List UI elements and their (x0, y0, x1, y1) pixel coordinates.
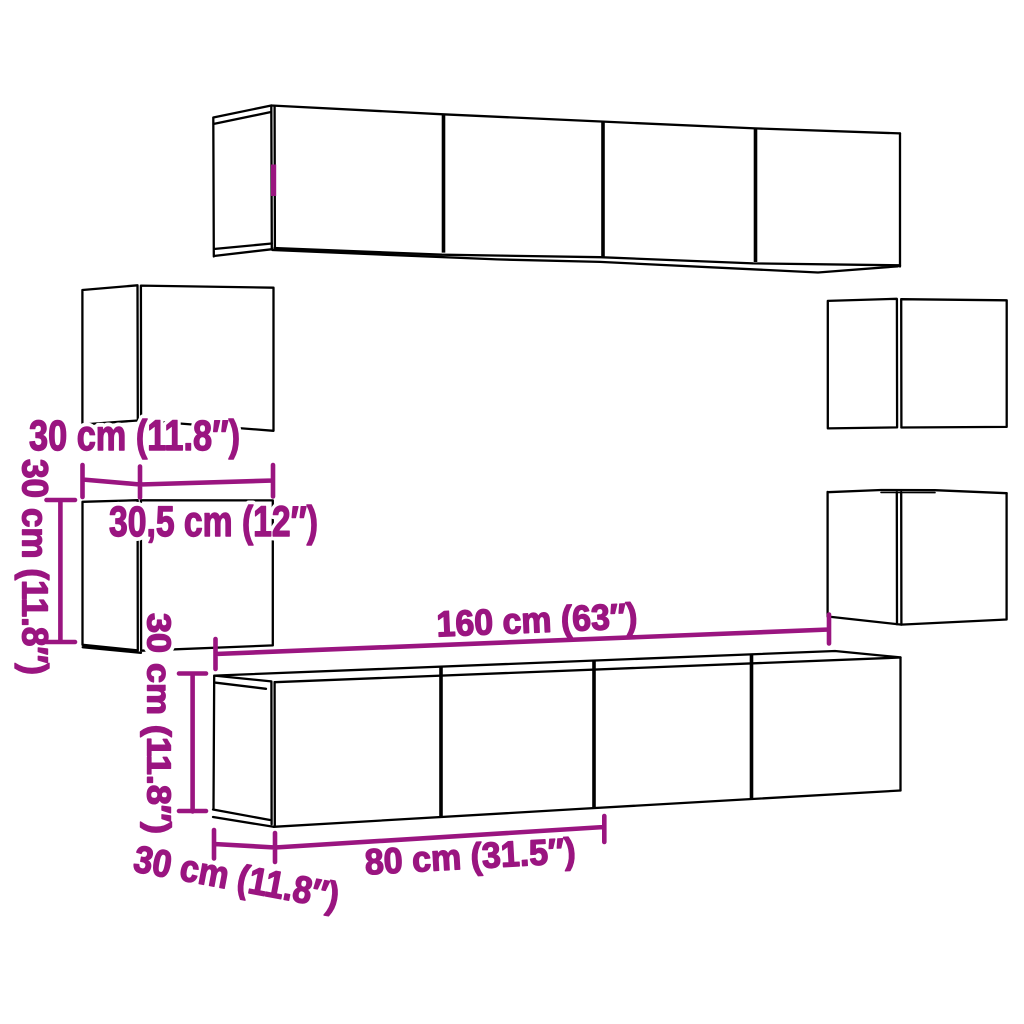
svg-text:30,5 cm (12″): 30,5 cm (12″) (109, 498, 318, 546)
svg-text:30 cm (11.8″): 30 cm (11.8″) (29, 412, 240, 460)
svg-text:30 cm (11.8″): 30 cm (11.8″) (141, 613, 178, 834)
